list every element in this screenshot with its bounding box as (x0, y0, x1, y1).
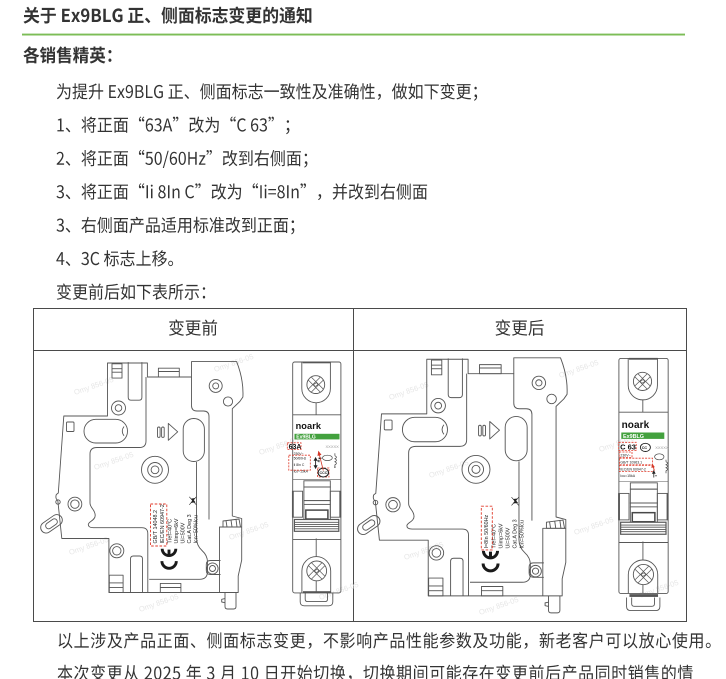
svg-text:Ui=500V: Ui=500V (506, 527, 512, 548)
svg-text:Uimp=6kV: Uimp=6kV (499, 523, 505, 548)
svg-text:50/60Hz: 50/60Hz (294, 456, 307, 460)
svg-text:GB/T 10963.1: GB/T 10963.1 (620, 461, 642, 465)
svg-text:IEC/EN 60947-2: IEC/EN 60947-2 (620, 467, 646, 471)
svg-text:Ex9BLG: Ex9BLG (296, 434, 316, 440)
svg-text:XXXXX: XXXXX (326, 444, 340, 449)
svg-text:230V~: 230V~ (620, 454, 630, 458)
svg-text:noark: noark (296, 421, 322, 431)
svg-text:Cat.A Deg 3: Cat.A Deg 3 (187, 514, 193, 543)
svg-text:XXXXX: XXXXX (655, 445, 669, 450)
svg-text:C 63: C 63 (620, 443, 636, 452)
svg-text:GB/T 14048.2: GB/T 14048.2 (153, 510, 159, 543)
svg-text:Tref=40°C: Tref=40°C (168, 519, 174, 544)
svg-text:Icn=50%Icu: Icn=50%Icu (520, 520, 526, 548)
svg-text:Icn=50%Icu: Icn=50%Icu (193, 515, 199, 543)
svg-text:Cat.A Deg 3: Cat.A Deg 3 (513, 519, 519, 548)
svg-text:Ex9BLG: Ex9BLG (623, 434, 644, 440)
svg-text:I=8In 50/60Hz: I=8In 50/60Hz (484, 514, 490, 548)
svg-text:Uimp=6kV: Uimp=6kV (174, 518, 180, 543)
svg-text:Icu=15kA: Icu=15kA (620, 474, 635, 478)
svg-text:CC: CC (642, 446, 648, 450)
svg-text:Ui=500V: Ui=500V (180, 522, 186, 543)
svg-text:noark: noark (622, 420, 650, 431)
svg-text:CCC: CCC (320, 471, 328, 475)
svg-text:IEC/EN 60947-2: IEC/EN 60947-2 (160, 504, 166, 543)
svg-text:Ii 8In C: Ii 8In C (294, 463, 305, 467)
svg-text:Tref=40°C: Tref=40°C (492, 524, 498, 549)
